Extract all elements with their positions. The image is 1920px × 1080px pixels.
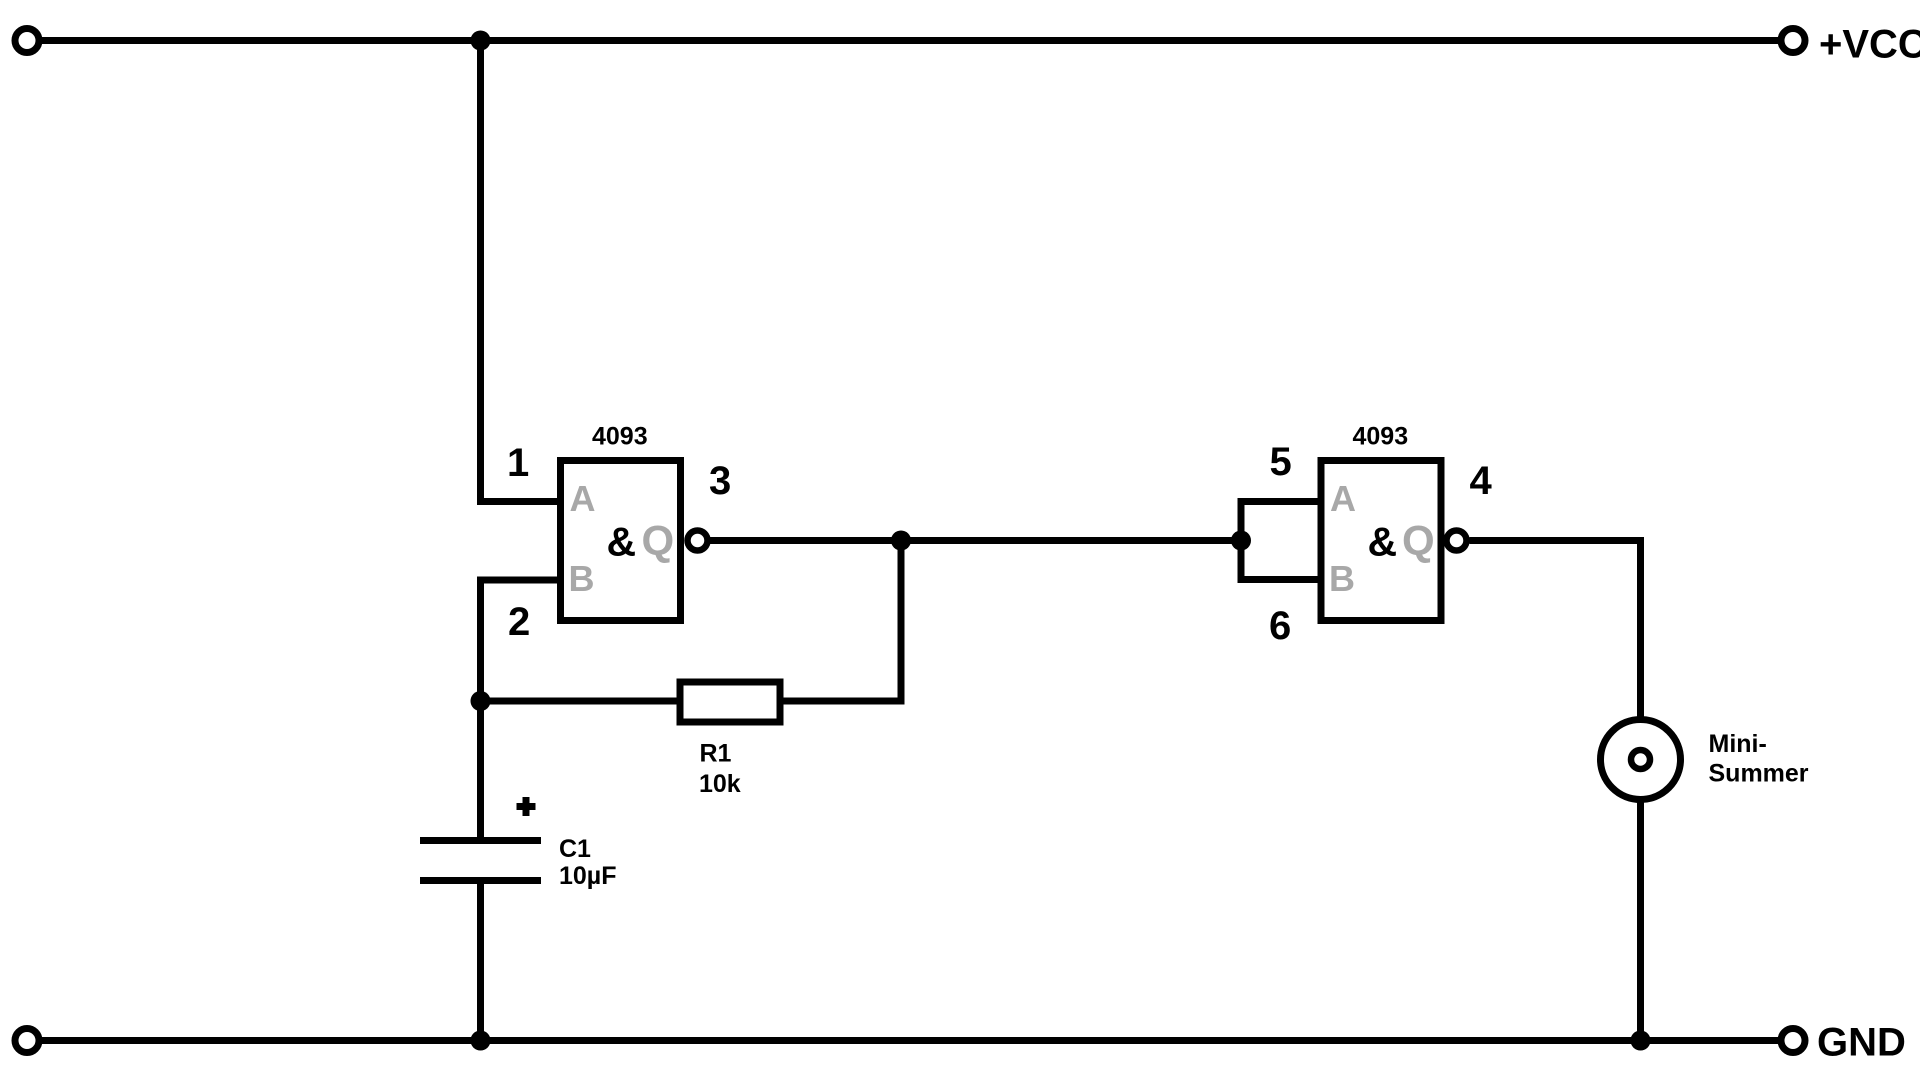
svg-text:4093: 4093 — [592, 423, 648, 451]
svg-text:B: B — [569, 558, 595, 599]
svg-text:GND: GND — [1817, 1021, 1906, 1065]
svg-text:A: A — [570, 478, 596, 519]
svg-text:Summer: Summer — [1709, 760, 1809, 788]
svg-text:10µF: 10µF — [559, 862, 616, 890]
svg-text:C1: C1 — [559, 835, 591, 863]
svg-text:6: 6 — [1269, 604, 1291, 648]
svg-text:R1: R1 — [700, 740, 732, 768]
svg-text:5: 5 — [1270, 440, 1292, 484]
svg-text:4093: 4093 — [1353, 423, 1409, 451]
svg-text:2: 2 — [508, 600, 530, 644]
svg-text:+VCC: +VCC — [1819, 23, 1920, 67]
svg-text:Q: Q — [642, 517, 675, 564]
svg-text:Mini-: Mini- — [1709, 730, 1767, 758]
svg-text:10k: 10k — [699, 770, 741, 798]
svg-text:1: 1 — [507, 441, 529, 485]
svg-text:B: B — [1329, 558, 1355, 599]
svg-text:&: & — [607, 519, 637, 565]
svg-text:3: 3 — [709, 459, 731, 503]
svg-text:&: & — [1368, 519, 1398, 565]
svg-text:Q: Q — [1402, 517, 1435, 564]
svg-text:A: A — [1330, 478, 1356, 519]
svg-text:4: 4 — [1470, 459, 1493, 503]
